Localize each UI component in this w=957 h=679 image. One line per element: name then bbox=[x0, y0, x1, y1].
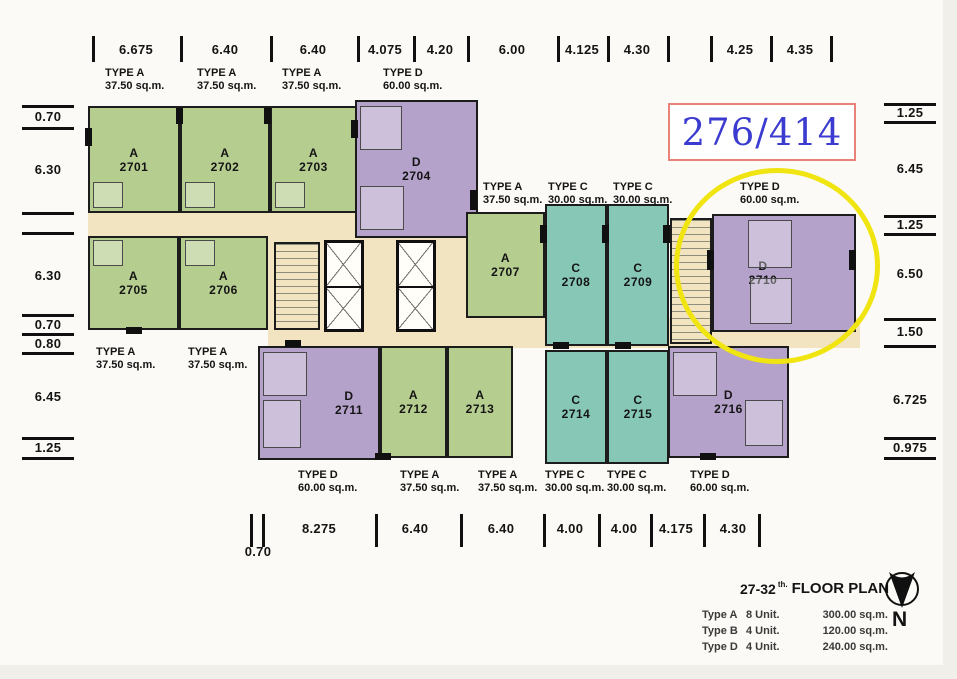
dimension-tick bbox=[467, 36, 470, 62]
unit-number: 2713 bbox=[466, 402, 495, 416]
dim-right: 6.50 bbox=[884, 266, 936, 281]
wall-segment bbox=[176, 108, 183, 124]
dimension-tick bbox=[703, 514, 706, 547]
dim-bottom: 4.00 bbox=[611, 521, 638, 536]
unit-number: 2704 bbox=[402, 169, 431, 183]
dimension-tick bbox=[22, 232, 74, 235]
unit-letter: C bbox=[624, 261, 653, 275]
unit-letter: A bbox=[466, 388, 495, 402]
type-area: 37.50 sq.m. bbox=[282, 80, 341, 93]
dimension-tick bbox=[92, 36, 95, 62]
dim-top: 6.675 bbox=[119, 42, 153, 57]
dimension-tick bbox=[884, 233, 936, 236]
type-area: 30.00 sq.m. bbox=[613, 194, 672, 207]
dim-right: 6.725 bbox=[884, 392, 936, 407]
legend-type: Type B bbox=[702, 625, 746, 637]
dimension-tick bbox=[22, 105, 74, 108]
highlight-circle-unit-2710 bbox=[674, 168, 880, 364]
bathroom bbox=[263, 400, 301, 448]
type-label-mid-3: TYPE C 30.00 sq.m. bbox=[613, 181, 672, 207]
unit-letter: A bbox=[211, 146, 240, 160]
dimension-tick bbox=[22, 352, 74, 355]
unit-letter: A bbox=[299, 146, 328, 160]
dimension-tick bbox=[830, 36, 833, 62]
dimension-tick bbox=[884, 457, 936, 460]
page-edge bbox=[943, 0, 957, 679]
type-area: 60.00 sq.m. bbox=[690, 482, 749, 495]
dimension-tick bbox=[413, 36, 416, 62]
type-label-leftmid-1: TYPE A 37.50 sq.m. bbox=[96, 346, 155, 372]
unit-number: 2715 bbox=[624, 407, 653, 421]
elevator-cab bbox=[399, 243, 433, 286]
unit-2714: C2714 bbox=[545, 350, 607, 464]
elevator-cab bbox=[327, 243, 361, 286]
wall-segment bbox=[285, 340, 301, 347]
dimension-tick bbox=[710, 36, 713, 62]
type-label-mid-1: TYPE A 37.50 sq.m. bbox=[483, 181, 542, 207]
unit-number: 2701 bbox=[120, 160, 149, 174]
type-area: 60.00 sq.m. bbox=[383, 80, 442, 93]
dim-left: 6.30 bbox=[22, 268, 74, 283]
type-label-top-4: TYPE D 60.00 sq.m. bbox=[383, 67, 442, 93]
bathroom bbox=[673, 352, 717, 396]
dim-top: 4.25 bbox=[727, 42, 754, 57]
wall-segment bbox=[375, 453, 391, 460]
dim-bottom: 6.40 bbox=[402, 521, 429, 536]
unit-number: 2708 bbox=[562, 275, 591, 289]
dim-left: 1.25 bbox=[22, 440, 74, 455]
legend-row-type-d: Type D 4 Unit. 240.00 sq.m. bbox=[702, 641, 888, 653]
unit-reference-badge: 276/414 bbox=[668, 103, 856, 161]
dimension-tick bbox=[270, 36, 273, 62]
type-name: TYPE A bbox=[400, 469, 459, 482]
type-name: TYPE C bbox=[613, 181, 672, 194]
dimension-tick bbox=[758, 514, 761, 547]
dim-top: 6.40 bbox=[300, 42, 327, 57]
wall-segment bbox=[553, 342, 569, 349]
dim-bottom: 4.175 bbox=[659, 521, 693, 536]
unit-2713: A2713 bbox=[447, 346, 513, 458]
unit-number: 2716 bbox=[714, 402, 743, 416]
bathroom bbox=[745, 400, 783, 446]
legend-count: 8 Unit. bbox=[746, 609, 798, 621]
bathroom bbox=[275, 182, 305, 208]
dim-left: 0.70 bbox=[22, 317, 74, 332]
floor-plan-title: 27-32 th. FLOOR PLAN bbox=[740, 580, 889, 597]
dimension-tick bbox=[180, 36, 183, 62]
bathroom bbox=[185, 182, 215, 208]
unit-reference-number: 276/414 bbox=[682, 111, 843, 154]
wall-segment bbox=[615, 342, 631, 349]
unit-letter: D bbox=[335, 389, 363, 403]
type-name: TYPE C bbox=[548, 181, 607, 194]
dim-left: 6.45 bbox=[22, 389, 74, 404]
type-area: 37.50 sq.m. bbox=[400, 482, 459, 495]
type-name: TYPE D bbox=[383, 67, 442, 80]
unit-letter: D bbox=[714, 388, 743, 402]
legend-count: 4 Unit. bbox=[746, 641, 798, 653]
unit-letter: A bbox=[209, 269, 238, 283]
wall-segment bbox=[470, 190, 477, 210]
unit-number: 2714 bbox=[562, 407, 591, 421]
unit-letter: C bbox=[624, 393, 653, 407]
type-name: TYPE A bbox=[96, 346, 155, 359]
legend-area: 120.00 sq.m. bbox=[798, 625, 888, 637]
dim-bottom: 4.30 bbox=[720, 521, 747, 536]
type-area: 37.50 sq.m. bbox=[96, 359, 155, 372]
type-name: TYPE A bbox=[188, 346, 247, 359]
dim-right: 6.45 bbox=[884, 161, 936, 176]
unit-2707: A2707 bbox=[466, 212, 545, 318]
type-label-bottom-1: TYPE D 60.00 sq.m. bbox=[298, 469, 357, 495]
type-label-leftmid-2: TYPE A 37.50 sq.m. bbox=[188, 346, 247, 372]
wall-segment bbox=[540, 225, 547, 243]
unit-2708: C2708 bbox=[545, 204, 607, 346]
unit-number: 2703 bbox=[299, 160, 328, 174]
type-name: TYPE A bbox=[197, 67, 256, 80]
floor-ordinal: th. bbox=[778, 580, 788, 589]
unit-number: 2711 bbox=[335, 403, 363, 417]
unit-number: 2702 bbox=[211, 160, 240, 174]
type-area: 30.00 sq.m. bbox=[548, 194, 607, 207]
floor-plan-label: FLOOR PLAN bbox=[792, 580, 890, 597]
legend-area: 240.00 sq.m. bbox=[798, 641, 888, 653]
unit-letter: A bbox=[119, 269, 148, 283]
dim-bottom: 8.275 bbox=[302, 521, 336, 536]
type-name: TYPE D bbox=[690, 469, 749, 482]
bathroom bbox=[360, 106, 402, 150]
type-area: 30.00 sq.m. bbox=[607, 482, 666, 495]
type-area: 37.50 sq.m. bbox=[197, 80, 256, 93]
dimension-tick bbox=[884, 345, 936, 348]
wall-segment bbox=[663, 225, 670, 243]
type-area: 37.50 sq.m. bbox=[478, 482, 537, 495]
unit-letter: D bbox=[402, 155, 431, 169]
dim-left: 0.80 bbox=[22, 336, 74, 351]
unit-number: 2712 bbox=[399, 402, 428, 416]
unit-2712: A2712 bbox=[380, 346, 447, 458]
dimension-tick bbox=[884, 318, 936, 321]
north-label: N bbox=[892, 608, 907, 632]
north-arrow-icon bbox=[876, 570, 928, 612]
unit-number: 2706 bbox=[209, 283, 238, 297]
legend-count: 4 Unit. bbox=[746, 625, 798, 637]
dim-top: 4.30 bbox=[624, 42, 651, 57]
dimension-tick bbox=[262, 514, 265, 547]
type-label-bottom-5: TYPE C 30.00 sq.m. bbox=[607, 469, 666, 495]
dim-bottom: 6.40 bbox=[488, 521, 515, 536]
unit-letter: C bbox=[562, 393, 591, 407]
dim-top: 6.00 bbox=[499, 42, 526, 57]
type-label-mid-2: TYPE C 30.00 sq.m. bbox=[548, 181, 607, 207]
bathroom bbox=[263, 352, 307, 396]
dimension-tick bbox=[250, 514, 253, 547]
unit-letter: C bbox=[562, 261, 591, 275]
page-edge bbox=[0, 665, 957, 679]
dimension-tick bbox=[770, 36, 773, 62]
dim-left: 0.70 bbox=[22, 109, 74, 124]
dimension-tick bbox=[375, 514, 378, 547]
floor-range: 27-32 bbox=[740, 581, 776, 597]
wall-segment bbox=[126, 327, 142, 334]
wall-segment bbox=[264, 108, 271, 124]
wall-segment bbox=[602, 225, 609, 243]
dim-right: 1.25 bbox=[884, 217, 936, 232]
type-name: TYPE A bbox=[105, 67, 164, 80]
unit-letter: A bbox=[120, 146, 149, 160]
type-label-bottom-3: TYPE A 37.50 sq.m. bbox=[478, 469, 537, 495]
type-label-bottom-2: TYPE A 37.50 sq.m. bbox=[400, 469, 459, 495]
unit-letter: A bbox=[399, 388, 428, 402]
dimension-tick bbox=[543, 514, 546, 547]
legend-area: 300.00 sq.m. bbox=[798, 609, 888, 621]
dimension-tick bbox=[357, 36, 360, 62]
type-label-top-2: TYPE A 37.50 sq.m. bbox=[197, 67, 256, 93]
bathroom bbox=[185, 240, 215, 266]
type-area: 30.00 sq.m. bbox=[545, 482, 604, 495]
type-name: TYPE C bbox=[545, 469, 604, 482]
dim-top: 4.35 bbox=[787, 42, 814, 57]
dimension-tick bbox=[22, 457, 74, 460]
unit-2715: C2715 bbox=[607, 350, 669, 464]
bathroom bbox=[93, 240, 123, 266]
wall-segment bbox=[700, 453, 716, 460]
type-area: 60.00 sq.m. bbox=[298, 482, 357, 495]
dim-top: 6.40 bbox=[212, 42, 239, 57]
dimension-tick bbox=[460, 514, 463, 547]
unit-letter: A bbox=[491, 251, 520, 265]
type-name: TYPE D bbox=[298, 469, 357, 482]
unit-number: 2705 bbox=[119, 283, 148, 297]
type-label-top-3: TYPE A 37.50 sq.m. bbox=[282, 67, 341, 93]
dimension-tick bbox=[22, 127, 74, 130]
dim-bottom: 4.00 bbox=[557, 521, 584, 536]
floor-plan-page: 6.675 6.40 6.40 4.075 4.20 6.00 4.125 4.… bbox=[0, 0, 957, 679]
dimension-tick bbox=[667, 36, 670, 62]
elevator-bank-2 bbox=[396, 240, 436, 332]
dim-right: 0.975 bbox=[884, 440, 936, 455]
type-name: TYPE A bbox=[282, 67, 341, 80]
elevator-bank-1 bbox=[324, 240, 364, 332]
dim-right: 1.50 bbox=[884, 324, 936, 339]
dimension-tick bbox=[557, 36, 560, 62]
dim-right: 1.25 bbox=[884, 105, 936, 120]
stairs-core bbox=[274, 242, 320, 330]
dimension-tick bbox=[650, 514, 653, 547]
type-name: TYPE A bbox=[478, 469, 537, 482]
type-label-top-1: TYPE A 37.50 sq.m. bbox=[105, 67, 164, 93]
dimension-tick bbox=[607, 36, 610, 62]
elevator-cab bbox=[327, 286, 361, 329]
legend-row-type-a: Type A 8 Unit. 300.00 sq.m. bbox=[702, 609, 888, 621]
dimension-tick bbox=[22, 212, 74, 215]
type-area: 37.50 sq.m. bbox=[105, 80, 164, 93]
bathroom bbox=[93, 182, 123, 208]
dim-top: 4.20 bbox=[427, 42, 454, 57]
unit-2709: C2709 bbox=[607, 204, 669, 346]
dim-left: 6.30 bbox=[22, 162, 74, 177]
wall-segment bbox=[351, 120, 358, 138]
elevator-cab bbox=[399, 286, 433, 329]
bathroom bbox=[360, 186, 404, 230]
type-area: 37.50 sq.m. bbox=[188, 359, 247, 372]
dimension-tick bbox=[598, 514, 601, 547]
dim-top: 4.075 bbox=[368, 42, 402, 57]
legend-type: Type D bbox=[702, 641, 746, 653]
legend-type: Type A bbox=[702, 609, 746, 621]
type-label-bottom-4: TYPE C 30.00 sq.m. bbox=[545, 469, 604, 495]
unit-number: 2707 bbox=[491, 265, 520, 279]
wall-segment bbox=[85, 128, 92, 146]
type-label-bottom-6: TYPE D 60.00 sq.m. bbox=[690, 469, 749, 495]
legend-row-type-b: Type B 4 Unit. 120.00 sq.m. bbox=[702, 625, 888, 637]
dimension-tick bbox=[884, 121, 936, 124]
type-name: TYPE A bbox=[483, 181, 542, 194]
type-name: TYPE C bbox=[607, 469, 666, 482]
type-area: 37.50 sq.m. bbox=[483, 194, 542, 207]
dim-bottom: 0.70 bbox=[245, 544, 272, 559]
unit-number: 2709 bbox=[624, 275, 653, 289]
dim-top: 4.125 bbox=[565, 42, 599, 57]
